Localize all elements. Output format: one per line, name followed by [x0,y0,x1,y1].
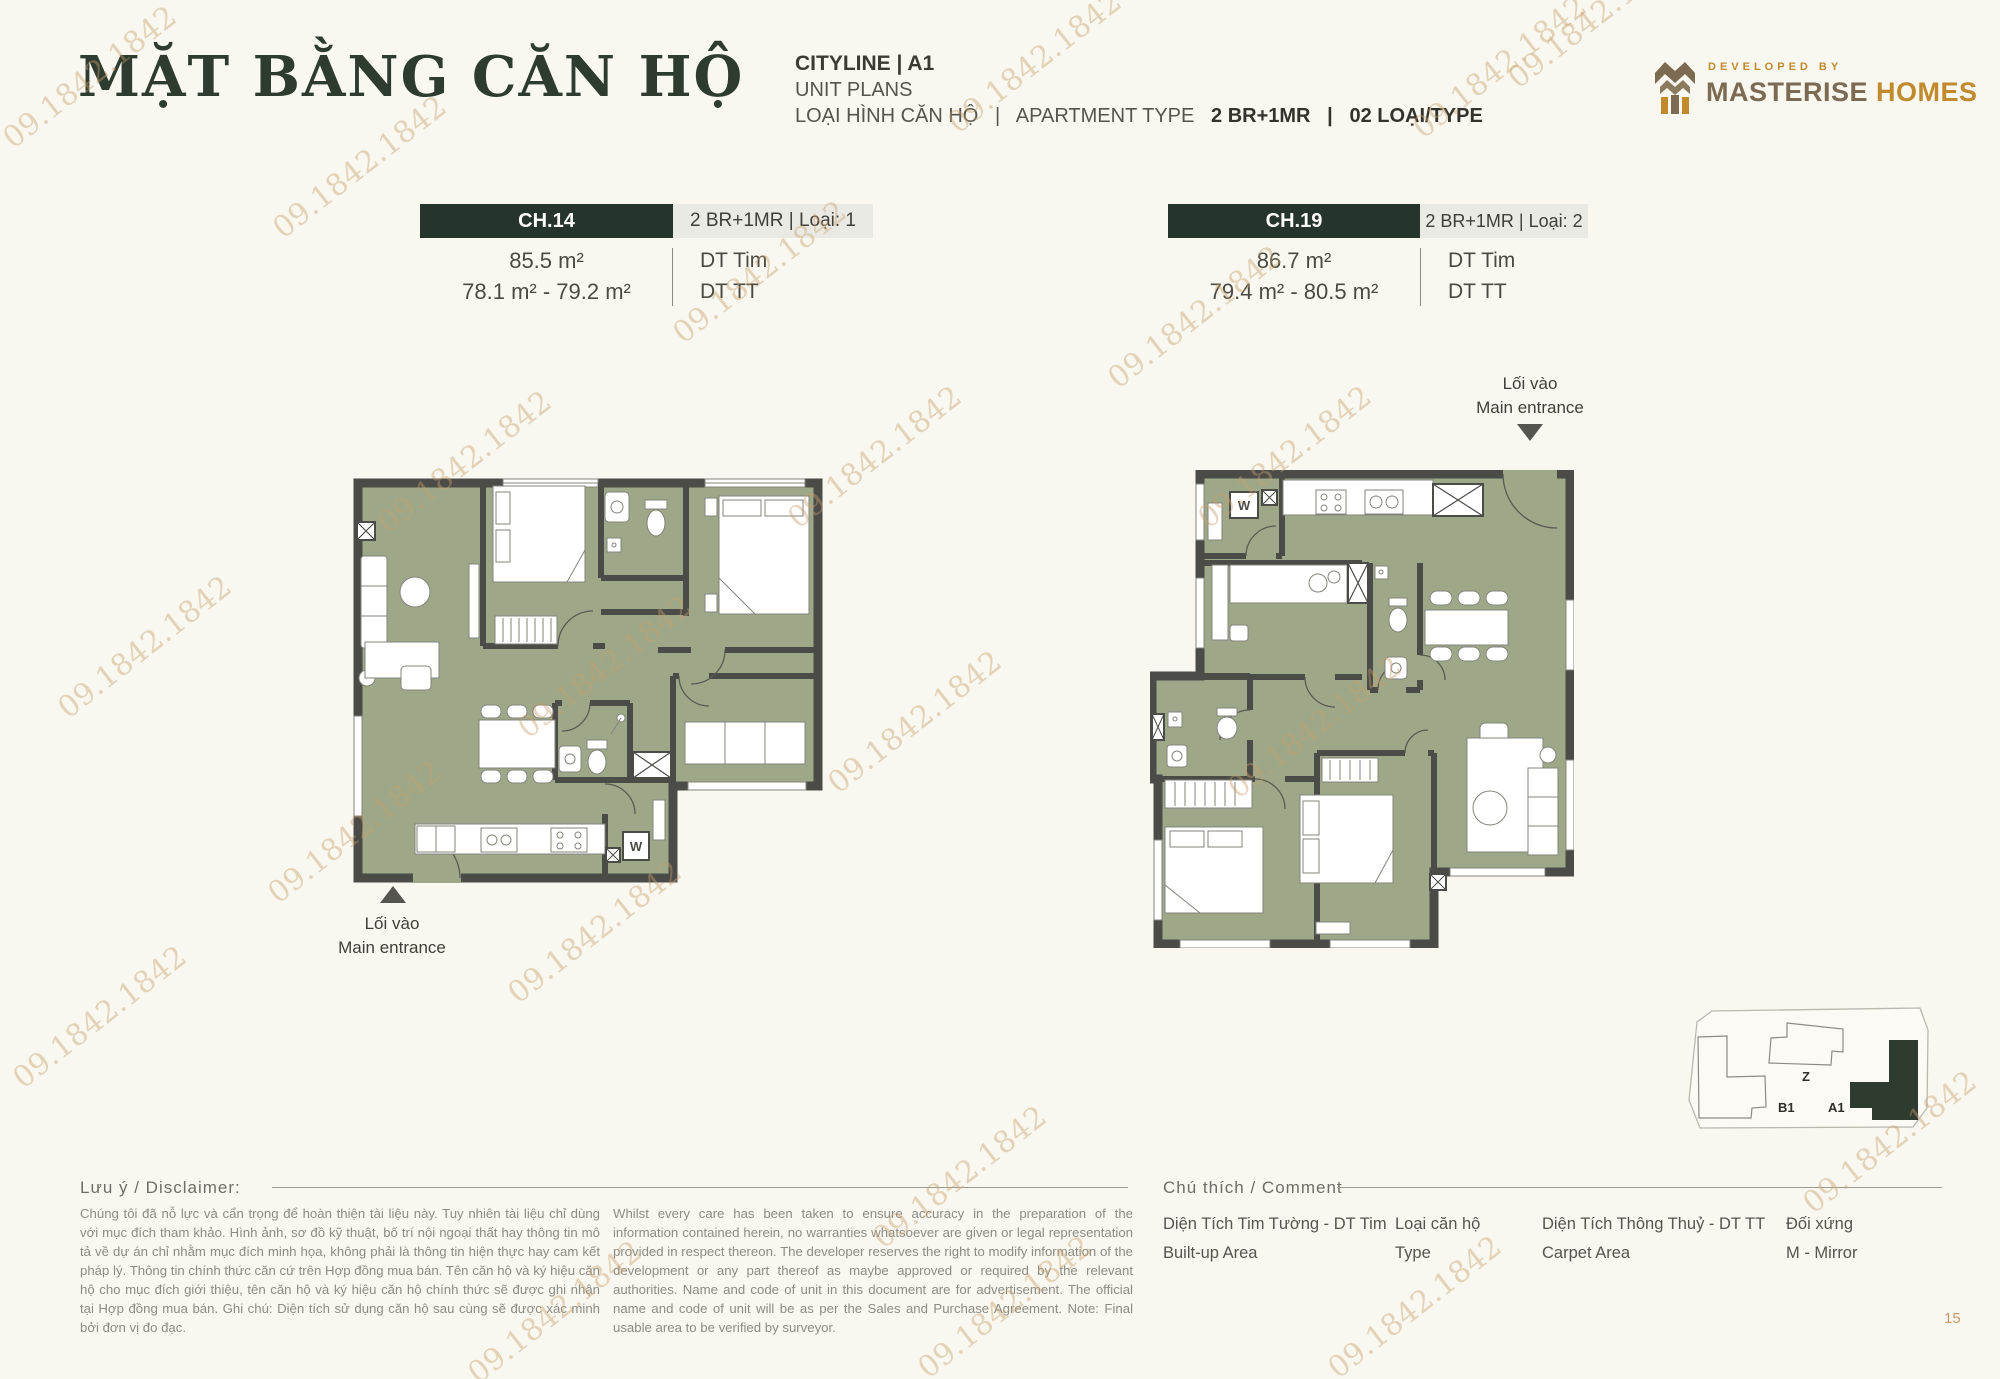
disclaimer-rule [272,1187,1128,1188]
brand-name: MASTERISE HOMES [1706,77,1978,108]
legend-vi: Diện Tích Thông Thuỷ - DT TT [1542,1210,1765,1239]
brochure-page: 09.1842.1842 09.1842.1842 09.1842.1842 0… [0,0,2000,1379]
legend-item-carpet: Diện Tích Thông Thuỷ - DT TT Carpet Area [1542,1210,1765,1268]
unit-type-ch14: 2 BR+1MR | Loại: 1 [673,204,873,238]
brand-masterise: MASTERISE [1706,77,1868,107]
washer-label: W [1238,498,1251,513]
page-title: MẶT BẰNG CĂN HỘ [78,44,744,110]
apartment-type-label: LOẠI HÌNH CĂN HỘ | APARTMENT TYPE [795,105,1211,127]
unit-plans-label: UNIT PLANS [795,79,912,102]
entrance-arrow-ch14 [380,886,406,903]
entrance-label-ch19: Lối vào Main entrance [1430,372,1630,420]
carpet-area-ch19: 79.4 m² - 80.5 m² [1168,276,1420,307]
washer-label: W [630,839,643,854]
divider [672,248,673,306]
floor-plan-ch14: W [353,478,823,883]
unit-code-ch19: CH.19 [1168,204,1420,238]
disclaimer-heading: Lưu ý / Disclaimer: [80,1178,241,1198]
developer-logo: DEVELOPED BY MASTERISE HOMES [1652,55,1952,117]
unit-areas-ch19: 86.7 m² 79.4 m² - 80.5 m² [1168,245,1420,307]
legend-en: Built-up Area [1163,1239,1387,1268]
built-up-label: DT Tim [1448,245,1515,276]
masterise-logo-icon [1652,57,1698,115]
entrance-en: Main entrance [292,936,492,960]
apartment-type-line: LOẠI HÌNH CĂN HỘ | APARTMENT TYPE 2 BR+1… [795,105,1483,128]
built-up-area-ch19: 86.7 m² [1168,245,1420,276]
entrance-label-ch14: Lối vào Main entrance [292,912,492,960]
legend-vi: Diện Tích Tim Tường - DT Tim [1163,1210,1387,1239]
carpet-area-ch14: 78.1 m² - 79.2 m² [420,276,673,307]
disclaimer-vietnamese: Chúng tôi đã nỗ lực và cẩn trọng để hoàn… [80,1204,600,1337]
unit-area-labels-ch14: DT Tim DT TT [700,245,767,307]
page-number: 15 [1944,1310,1961,1327]
legend-rule [1337,1187,1942,1188]
unit-area-labels-ch19: DT Tim DT TT [1448,245,1515,307]
building-b1-label: B1 [1778,1100,1795,1115]
building-z-label: Z [1802,1069,1810,1084]
entrance-en: Main entrance [1430,396,1630,420]
floor-plan-ch19: W [1150,470,1574,948]
carpet-label: DT TT [700,276,767,307]
legend-en: Type [1395,1239,1480,1268]
legend-item-type: Loại căn hộ Type [1395,1210,1480,1268]
project-name: CITYLINE | A1 [795,52,934,76]
disclaimer-english: Whilst every care has been taken to ensu… [613,1204,1133,1337]
built-up-area-ch14: 85.5 m² [420,245,673,276]
entrance-vi: Lối vào [1430,372,1630,396]
legend-vi: Loại căn hộ [1395,1210,1480,1239]
watermark: 09.1842.1842 [821,644,1008,801]
legend-item-built-up: Diện Tích Tim Tường - DT Tim Built-up Ar… [1163,1210,1387,1268]
legend-heading: Chú thích / Comment [1163,1178,1343,1198]
watermark: 09.1842.1842 [6,939,193,1096]
apartment-type-value: 2 BR+1MR | 02 LOẠI/TYPE [1211,105,1483,127]
site-locator-map: B1 Z A1 [1683,1000,1943,1140]
legend-item-mirror: Đối xứng M - Mirror [1786,1210,1857,1268]
developed-by-label: DEVELOPED BY [1708,61,1842,73]
building-a1-label: A1 [1828,1100,1845,1115]
entrance-vi: Lối vào [292,912,492,936]
unit-areas-ch14: 85.5 m² 78.1 m² - 79.2 m² [420,245,673,307]
carpet-label: DT TT [1448,276,1515,307]
unit-type-ch19: 2 BR+1MR | Loại: 2 [1420,204,1588,238]
divider [1420,248,1421,306]
unit-code-ch14: CH.14 [420,204,673,238]
brand-homes: HOMES [1876,77,1978,107]
built-up-label: DT Tim [700,245,767,276]
watermark: 09.1842.1842 [51,569,238,726]
legend-en: Carpet Area [1542,1239,1765,1268]
entrance-arrow-ch19 [1517,424,1543,441]
legend-vi: Đối xứng [1786,1210,1857,1239]
legend-en: M - Mirror [1786,1239,1857,1268]
